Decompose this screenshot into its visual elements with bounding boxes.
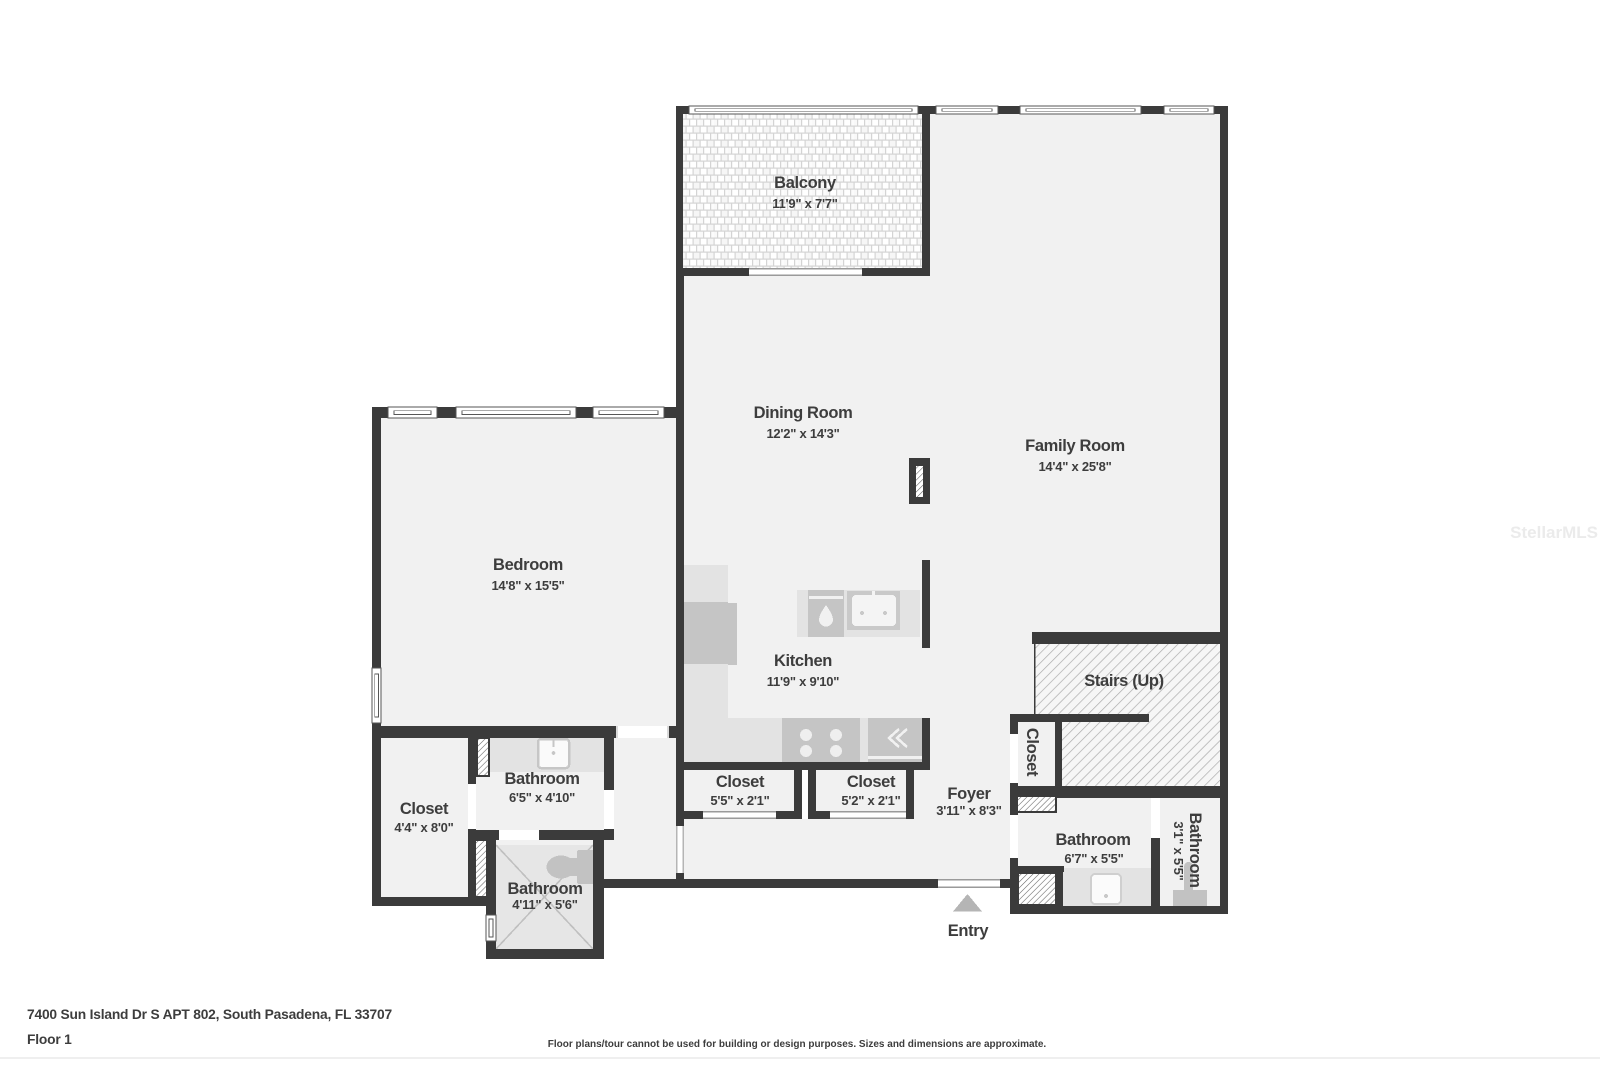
svg-text:Foyer: Foyer	[947, 785, 991, 803]
svg-text:Kitchen: Kitchen	[774, 652, 832, 670]
svg-text:3'1" x 5'5": 3'1" x 5'5"	[1171, 821, 1186, 880]
svg-text:StellarMLS: StellarMLS	[1510, 523, 1598, 542]
svg-text:5'2" x 2'1": 5'2" x 2'1"	[841, 793, 900, 808]
svg-text:Bathroom: Bathroom	[1186, 812, 1204, 887]
svg-text:14'4" x 25'8": 14'4" x 25'8"	[1038, 459, 1111, 474]
svg-text:5'5" x 2'1": 5'5" x 2'1"	[710, 793, 769, 808]
svg-text:4'11" x 5'6": 4'11" x 5'6"	[512, 897, 577, 912]
svg-text:Entry: Entry	[948, 922, 990, 940]
svg-text:14'8" x 15'5": 14'8" x 15'5"	[491, 578, 564, 593]
svg-text:6'7" x 5'5": 6'7" x 5'5"	[1064, 851, 1123, 866]
svg-text:Floor plans/tour cannot be use: Floor plans/tour cannot be used for buil…	[548, 1039, 1047, 1050]
svg-text:6'5" x 4'10": 6'5" x 4'10"	[509, 790, 575, 805]
svg-text:Bedroom: Bedroom	[493, 556, 563, 574]
svg-text:Closet: Closet	[847, 773, 896, 791]
svg-text:Closet: Closet	[716, 773, 765, 791]
svg-text:3'11" x 8'3": 3'11" x 8'3"	[936, 803, 1001, 818]
svg-text:Stairs (Up): Stairs (Up)	[1084, 672, 1164, 690]
svg-text:Floor 1: Floor 1	[27, 1032, 72, 1047]
svg-text:11'9" x 9'10": 11'9" x 9'10"	[767, 674, 839, 689]
svg-text:7400 Sun Island Dr S APT 802,: 7400 Sun Island Dr S APT 802, South Pasa…	[27, 1007, 392, 1022]
svg-text:Bathroom: Bathroom	[507, 880, 582, 898]
svg-text:Closet: Closet	[400, 800, 449, 818]
svg-text:Bathroom: Bathroom	[504, 770, 579, 788]
svg-text:Family Room: Family Room	[1025, 437, 1125, 455]
svg-text:12'2" x 14'3": 12'2" x 14'3"	[766, 426, 839, 441]
svg-text:11'9" x 7'7": 11'9" x 7'7"	[772, 196, 837, 211]
svg-text:Balcony: Balcony	[774, 174, 837, 192]
svg-text:4'4" x 8'0": 4'4" x 8'0"	[394, 820, 453, 835]
svg-text:Bathroom: Bathroom	[1055, 831, 1130, 849]
svg-text:Dining Room: Dining Room	[754, 404, 853, 422]
svg-text:Closet: Closet	[1023, 728, 1041, 777]
